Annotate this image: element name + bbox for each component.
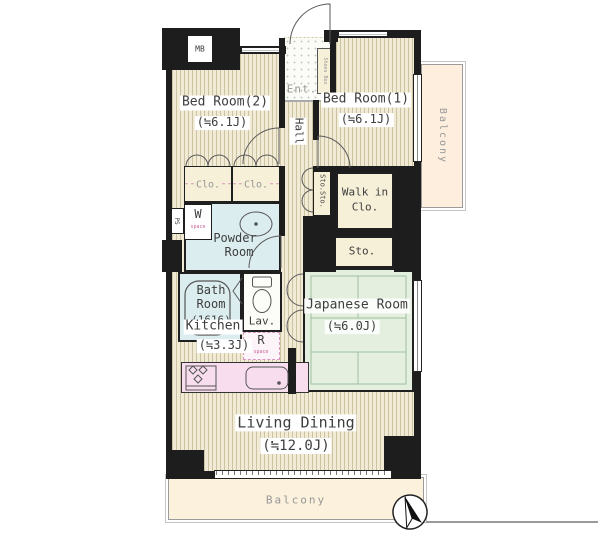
kitchen-name: Kitchen: [184, 320, 243, 335]
japanese-name: Japanese Room: [304, 299, 410, 314]
bedroom2-size: (≒6.1J): [195, 116, 250, 130]
closet2-label: Clo.: [229, 179, 283, 191]
bath-line2: Room: [195, 298, 228, 312]
entrance-label: Ent.: [285, 84, 320, 97]
bedroom2-name: Bed Room(2): [180, 96, 270, 111]
kitchen-size: (≒3.3J): [197, 339, 252, 353]
bath-folding-door: [233, 278, 242, 304]
closet1-bifold-arcs: [186, 155, 230, 166]
kitchen-sink-icon: [246, 367, 288, 389]
lavatory-label: Lav.: [247, 316, 278, 329]
toilet-icon: [253, 277, 272, 313]
stove-icon: [186, 366, 216, 390]
compass-icon: [389, 491, 432, 533]
hall-label: Hall: [290, 118, 307, 145]
walkin-line1: Walk in: [340, 187, 390, 200]
bedroom1-size: (≒6.1J): [339, 113, 394, 127]
bedroom2-door-arc: [243, 128, 279, 164]
closet1-label: Clo.: [181, 179, 235, 191]
storage-hall-door-arcs: [302, 168, 313, 212]
washer-letter: W: [192, 208, 203, 222]
living-size: (≒12.0J): [260, 438, 331, 454]
pipe-space-label: PS: [170, 217, 181, 224]
japanese-size: (≒6.0J): [325, 320, 380, 334]
washer-caption: space: [188, 225, 207, 231]
powder-line2: Room: [223, 246, 256, 260]
bath-line1: Bath: [195, 284, 228, 298]
meter-box-label: MB: [193, 44, 207, 53]
storage-hall-label: Sto.Sto.: [316, 174, 328, 208]
storage-label: Sto.: [347, 246, 378, 259]
refrigerator-letter: R: [255, 334, 266, 348]
refrigerator-caption: space: [251, 350, 270, 356]
japanese-door-arcs: [287, 274, 303, 342]
bedroom1-door-arc: [318, 136, 350, 168]
floorplan: Balcony Balcony Shoes Box: [0, 0, 600, 533]
entrance-door-arc: [290, 4, 330, 44]
closet2-bifold-arcs: [234, 155, 278, 166]
living-name: Living Dining: [235, 414, 356, 431]
walkin-line2: Clo.: [350, 202, 381, 215]
powder-line1: Powder: [211, 232, 258, 246]
bedroom1-name: Bed Room(1): [321, 93, 411, 108]
